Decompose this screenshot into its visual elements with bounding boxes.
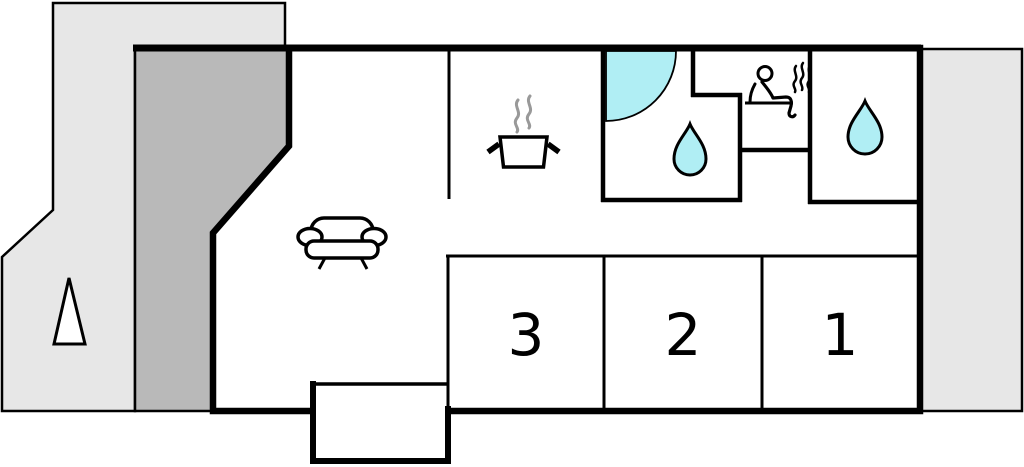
bedroom-1-label: 1 xyxy=(822,301,859,369)
bedroom-2-label: 2 xyxy=(665,301,702,369)
entrance-floor xyxy=(316,384,445,458)
floorplan-drawing: 3 2 1 xyxy=(0,0,1024,467)
floorplan: 3 2 1 xyxy=(0,0,1024,467)
person-head xyxy=(758,67,772,81)
sofa-seat xyxy=(306,241,378,258)
bedroom-3-label: 3 xyxy=(508,301,545,369)
pot-body xyxy=(500,137,547,167)
right-terrace xyxy=(920,49,1022,411)
entrance-vestibule xyxy=(310,381,451,461)
